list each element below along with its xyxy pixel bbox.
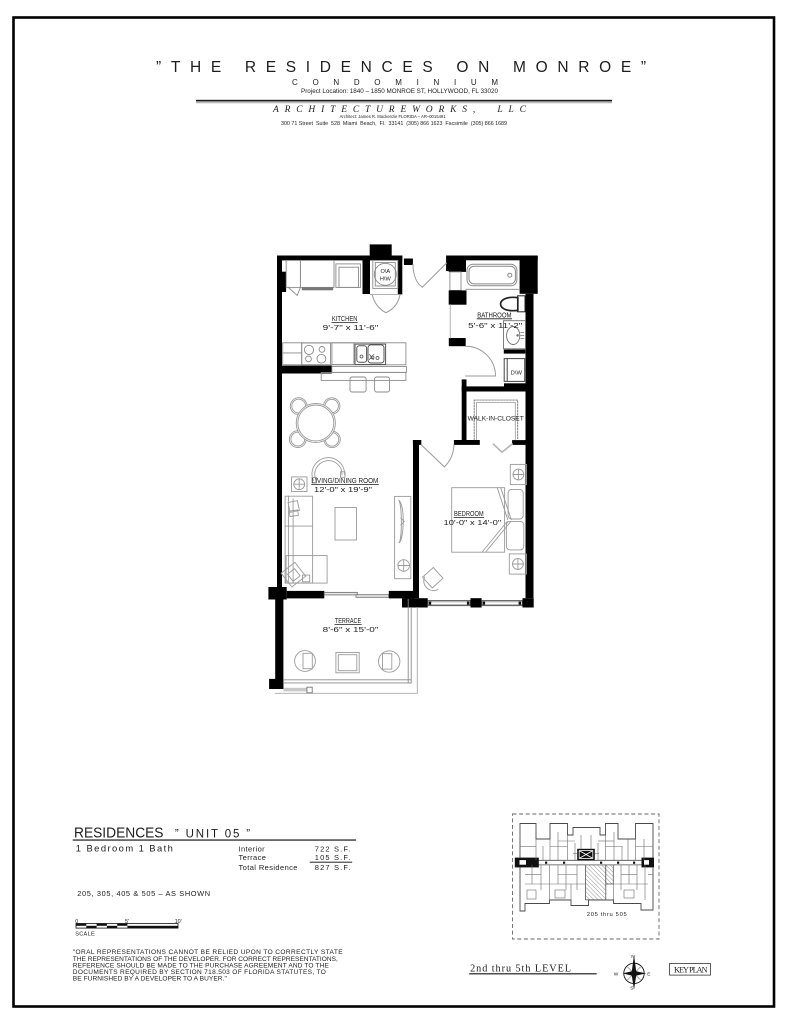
svg-text:5'-6" x 11'-2": 5'-6" x 11'-2" [468,321,523,330]
svg-text:Project Location: 1840 – 1850: Project Location: 1840 – 1850 MONROE ST,… [301,88,498,95]
svg-text:10'-0" x 14'-0": 10'-0" x 14'-0" [444,518,502,527]
svg-text:” UNIT 05 ”: ” UNIT 05 ” [175,828,250,840]
svg-text:BATHROOM: BATHROOM [477,312,512,319]
svg-text:E: E [647,972,650,978]
svg-text:9'-7" x 11'-6": 9'-7" x 11'-6" [323,323,379,332]
svg-text:BE FURNISHED BY A DEVELOPER TO: BE FURNISHED BY A DEVELOPER TO A BUYER." [73,976,228,983]
svg-text:300 71 Street Suite 528 Mia: 300 71 Street Suite 528 Miami Beach, Fl.… [281,121,507,127]
svg-text:WALK-IN-CLOSET: WALK-IN-CLOSET [468,415,524,422]
svg-text:KEY PLAN: KEY PLAN [674,965,708,974]
svg-text:H\W: H\W [380,277,392,283]
svg-text:205, 305, 405 & 505 – AS SHOWN: 205, 305, 405 & 505 – AS SHOWN [77,889,210,898]
svg-text:Architect: James R. Mackenzie: Architect: James R. Mackenzie FLORIDA – … [340,114,446,120]
svg-text:0: 0 [75,919,78,925]
svg-text:205 thru 505: 205 thru 505 [587,912,627,918]
svg-text:8'-6" x 15'-0": 8'-6" x 15'-0" [323,625,379,634]
svg-text:N: N [631,954,635,960]
svg-text:Terrace: Terrace [239,853,267,862]
svg-text:S: S [630,986,633,992]
svg-text:Total Residence: Total Residence [239,863,298,872]
svg-text:O\A: O\A [380,269,390,275]
svg-text:LIVING/DINING ROOM: LIVING/DINING ROOM [312,478,379,485]
svg-text:2nd thru 5th LEVEL: 2nd thru 5th LEVEL [470,964,571,975]
svg-text:5': 5' [125,919,129,925]
svg-text:1 Bedroom 1 Bath: 1 Bedroom 1 Bath [76,842,173,853]
svg-text:TERRACE: TERRACE [335,618,362,625]
svg-text:W: W [614,972,619,978]
svg-text:12'-0" x 19'-9": 12'-0" x 19'-9" [314,485,373,494]
svg-text:10': 10' [175,919,182,925]
svg-text:827 S.F.: 827 S.F. [315,863,351,872]
svg-text:RESIDENCES: RESIDENCES [74,825,164,841]
svg-text:D\W: D\W [511,370,523,376]
svg-text:105 S.F.: 105 S.F. [315,853,351,862]
svg-text:SCALE: SCALE [75,931,95,937]
